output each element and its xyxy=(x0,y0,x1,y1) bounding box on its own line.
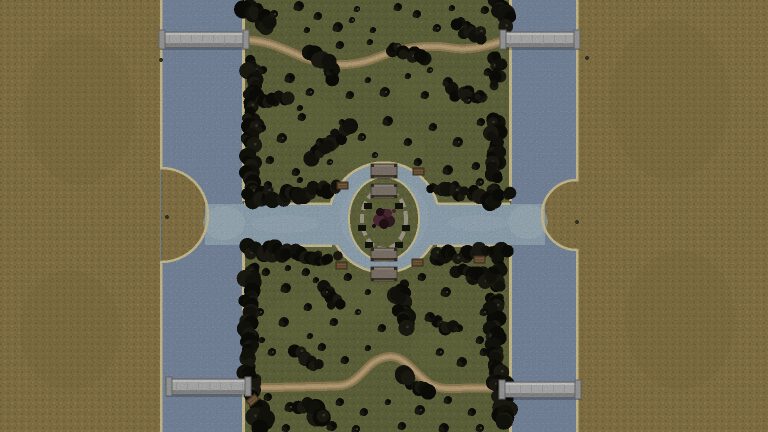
pixel-grain-overlay xyxy=(0,0,768,432)
terrain-map[interactable] xyxy=(0,0,768,432)
game-viewport[interactable] xyxy=(0,0,768,432)
